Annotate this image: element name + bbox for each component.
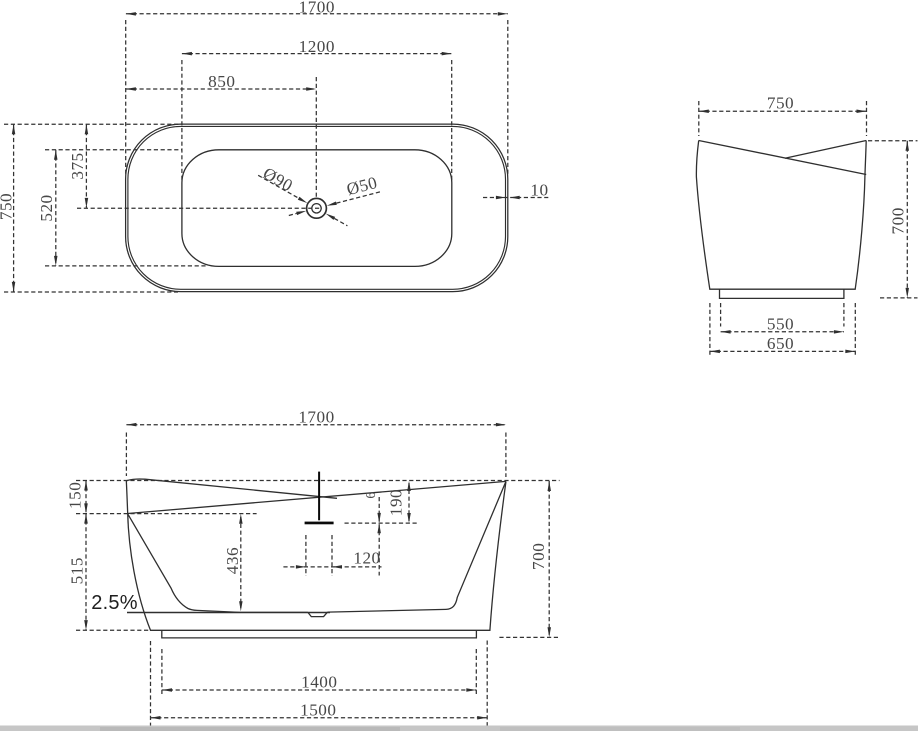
svg-text:650: 650 bbox=[767, 334, 794, 353]
svg-text:1400: 1400 bbox=[301, 673, 337, 692]
svg-text:6: 6 bbox=[363, 491, 378, 498]
svg-text:436: 436 bbox=[223, 547, 242, 574]
svg-text:1700: 1700 bbox=[298, 408, 334, 427]
svg-text:120: 120 bbox=[353, 549, 380, 568]
svg-text:150: 150 bbox=[65, 482, 84, 509]
svg-text:515: 515 bbox=[67, 557, 86, 584]
svg-text:700: 700 bbox=[529, 543, 548, 570]
svg-text:2.5%: 2.5% bbox=[91, 592, 137, 614]
svg-text:700: 700 bbox=[888, 207, 907, 234]
svg-text:190: 190 bbox=[387, 489, 406, 516]
svg-text:1700: 1700 bbox=[299, 0, 335, 17]
svg-text:850: 850 bbox=[208, 72, 235, 91]
svg-text:750: 750 bbox=[0, 193, 16, 220]
svg-text:10: 10 bbox=[530, 180, 548, 199]
svg-text:550: 550 bbox=[767, 315, 794, 334]
svg-text:750: 750 bbox=[767, 93, 794, 112]
svg-text:1200: 1200 bbox=[299, 37, 335, 56]
svg-text:375: 375 bbox=[68, 152, 87, 179]
svg-text:1500: 1500 bbox=[300, 701, 336, 720]
svg-text:520: 520 bbox=[37, 194, 56, 221]
